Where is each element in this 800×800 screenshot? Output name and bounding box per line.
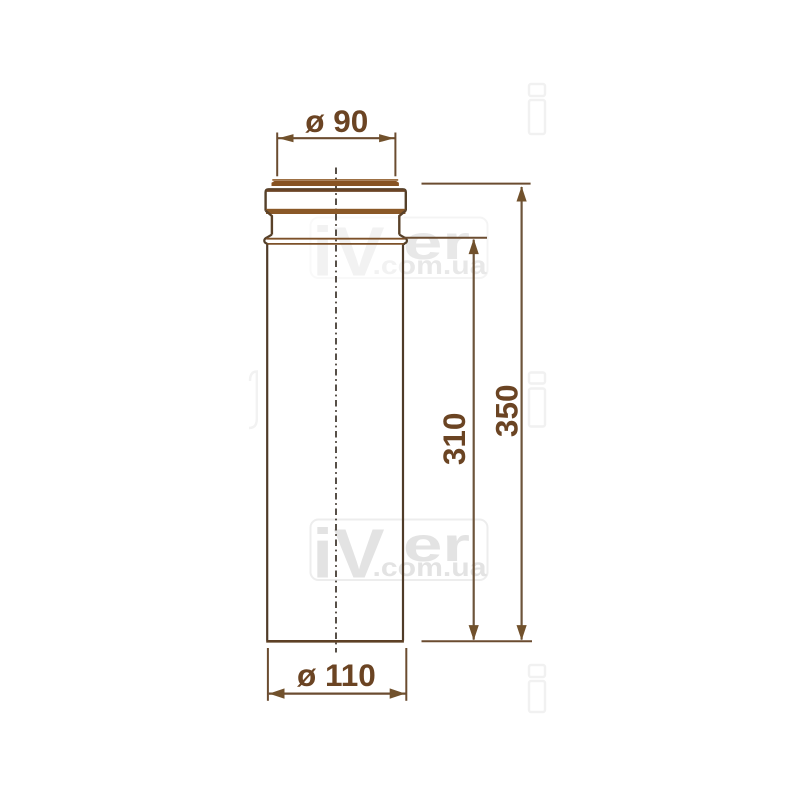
svg-text:ø 90: ø 90 — [305, 103, 368, 139]
svg-text:.com.ua: .com.ua — [373, 552, 488, 582]
svg-text:310: 310 — [436, 413, 472, 466]
svg-text:350: 350 — [489, 385, 525, 438]
svg-text:ø 110: ø 110 — [297, 657, 376, 693]
